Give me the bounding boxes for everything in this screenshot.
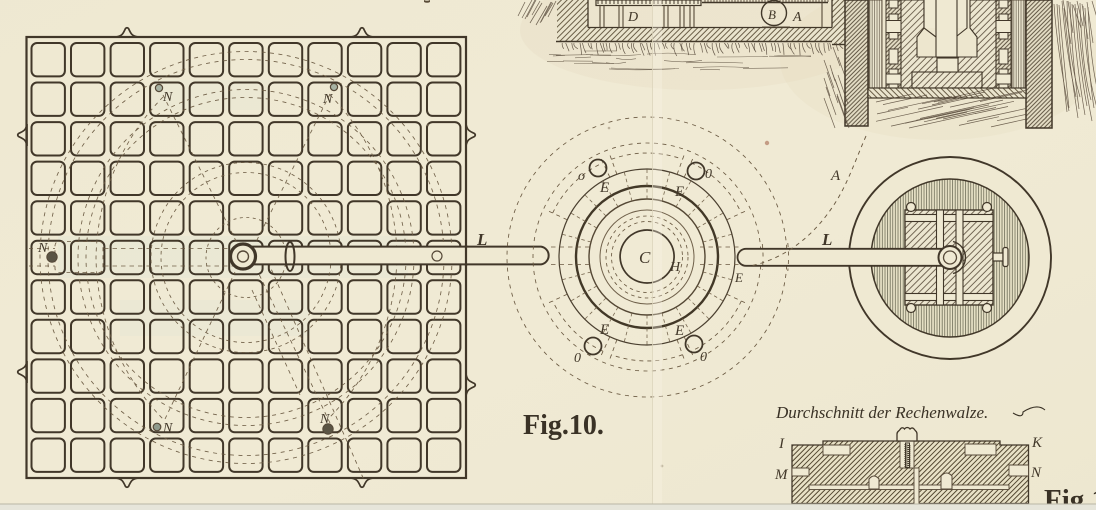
svg-text:M: M <box>774 467 789 483</box>
svg-text:N: N <box>162 90 173 105</box>
svg-text:C: C <box>639 248 651 267</box>
svg-text:E: E <box>674 323 684 339</box>
svg-text:0: 0 <box>574 351 581 366</box>
svg-text:Fig.10.: Fig.10. <box>523 410 604 441</box>
svg-text:N: N <box>162 421 173 436</box>
svg-text:L: L <box>476 230 487 249</box>
svg-text:A: A <box>830 168 841 184</box>
svg-text:I: I <box>778 436 785 452</box>
svg-text:E: E <box>599 322 609 338</box>
svg-text:A: A <box>792 10 802 25</box>
svg-text:H: H <box>669 260 681 275</box>
svg-text:Durchschnitt der Rechenwalze.: Durchschnitt der Rechenwalze. <box>775 403 988 422</box>
svg-text:N: N <box>1030 465 1042 481</box>
svg-text:K: K <box>1031 435 1043 451</box>
svg-text:B: B <box>768 7 776 22</box>
svg-text:E: E <box>734 270 743 285</box>
svg-text:E: E <box>674 184 684 200</box>
svg-text:o: o <box>578 169 585 184</box>
svg-text:0: 0 <box>705 167 712 182</box>
svg-text:D: D <box>627 10 638 25</box>
svg-text:N: N <box>37 241 48 256</box>
svg-text:E: E <box>599 180 609 196</box>
svg-text:0: 0 <box>700 350 707 365</box>
svg-text:N: N <box>322 92 333 107</box>
svg-text:L: L <box>821 230 832 249</box>
